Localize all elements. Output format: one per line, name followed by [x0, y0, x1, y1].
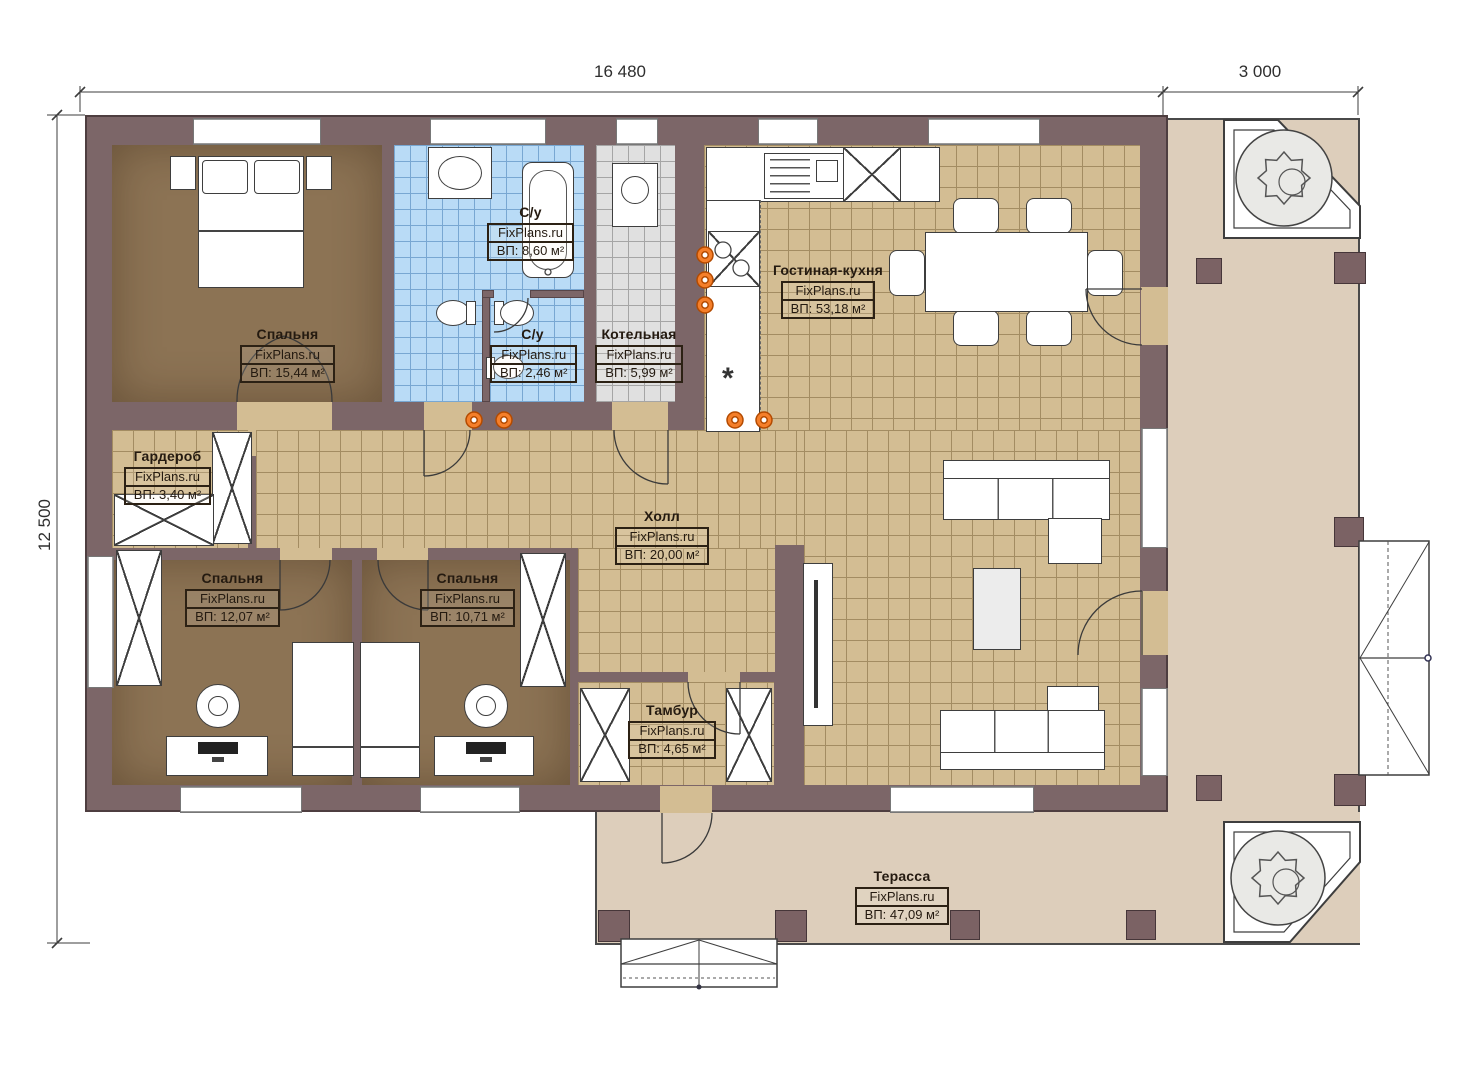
pillow — [202, 160, 248, 194]
door-gap-kitchen-terrace — [1141, 287, 1168, 345]
oven-control-box — [816, 160, 838, 182]
bed-blanket-line — [360, 746, 420, 748]
sofa-back — [943, 460, 1110, 480]
dining-chair — [953, 198, 999, 234]
dimension-top-right: 3 000 — [1190, 62, 1330, 82]
window-boiler — [616, 118, 658, 145]
sofa-chaise — [1048, 518, 1102, 564]
monitor — [198, 742, 238, 754]
desk-chair-inner — [208, 696, 228, 716]
column — [1196, 775, 1222, 801]
watermark: FixPlans.ru — [489, 225, 572, 243]
window-living-bottom — [890, 786, 1034, 813]
label-bathroom-small: С/у FixPlans.ruВП: 2,46 м² — [490, 326, 575, 383]
watermark: FixPlans.ru — [422, 591, 513, 609]
sofa2-back — [940, 752, 1105, 770]
sofa2-seats — [940, 710, 1105, 754]
bed-blanket-line — [292, 746, 354, 748]
desk-chair-inner — [476, 696, 496, 716]
entry-stairs-bottom — [620, 938, 780, 992]
window-bedroom-2-bottom — [180, 786, 302, 813]
kitchen-sink-icon — [708, 231, 760, 287]
label-hall: Холл FixPlans.ruВП: 20,00 м² — [612, 508, 712, 565]
oven-grill-lines — [770, 159, 810, 193]
dining-chair — [1026, 310, 1072, 346]
window-living-top — [928, 118, 1040, 145]
dimension-left: 12 500 — [35, 480, 55, 570]
sink-basin — [438, 156, 482, 190]
bed-blanket-line — [198, 230, 304, 232]
floor-plan: 16 480 3 000 12 500 * — [0, 0, 1473, 1080]
watermark: FixPlans.ru — [857, 889, 948, 907]
tree-canopy — [1236, 130, 1332, 226]
window-bedroom-2-left — [87, 556, 114, 688]
label-bathroom-main: С/у FixPlans.ruВП: 8,60 м² — [483, 204, 578, 261]
column — [1334, 252, 1366, 284]
watermark: FixPlans.ru — [630, 723, 713, 741]
sofa-seats — [943, 478, 1110, 520]
dining-chair — [953, 310, 999, 346]
wardrobe-cabinet — [212, 432, 252, 544]
tree-canopy — [1231, 831, 1325, 925]
nightstand — [170, 156, 196, 190]
watermark: FixPlans.ru — [126, 469, 209, 487]
column — [1126, 910, 1156, 940]
watermark: FixPlans.ru — [617, 529, 708, 547]
wardrobe-cabinet — [116, 550, 162, 686]
door-gap-bathroom — [424, 402, 472, 430]
label-vestibule: Тамбур FixPlans.ruВП: 4,65 м² — [622, 702, 722, 759]
monitor — [466, 742, 506, 754]
toilet-tank — [466, 301, 476, 325]
watermark: FixPlans.ru — [242, 347, 333, 365]
wardrobe-cabinet — [520, 553, 566, 687]
gas-boiler-mark: * — [722, 362, 734, 396]
washing-machine-drum — [621, 176, 649, 204]
tv-stand — [803, 563, 833, 726]
dining-chair — [1087, 250, 1123, 296]
floor-hall-corridor — [578, 548, 775, 672]
column — [1196, 258, 1222, 284]
planter-bottom-right — [1222, 820, 1362, 944]
label-wardrobe-room: Гардероб FixPlans.ruВП: 3,40 м² — [120, 448, 215, 505]
window-kitchen — [758, 118, 818, 145]
dimension-top-main: 16 480 — [540, 62, 700, 82]
door-gap-vestibule-terrace — [660, 786, 712, 813]
door-gap-bedroom-3 — [377, 548, 428, 560]
toilet-bowl — [436, 300, 470, 326]
window-living-right-lower — [1141, 688, 1168, 776]
door-gap-vestibule — [688, 672, 740, 682]
window-living-right — [1141, 428, 1168, 548]
door-gap-boiler — [612, 402, 668, 430]
wall-bathroom-small-top — [530, 290, 584, 298]
terrace-stairs-right — [1358, 540, 1434, 778]
watermark: FixPlans.ru — [597, 347, 680, 365]
monitor-stand — [212, 757, 224, 762]
dining-table — [925, 232, 1088, 312]
window-bedroom-master — [193, 118, 321, 145]
coffee-table — [973, 568, 1021, 650]
column — [1334, 774, 1366, 806]
floor-hall-living-opening — [775, 430, 804, 545]
watermark: FixPlans.ru — [492, 347, 575, 365]
wall-bathroom-small-stub — [482, 290, 494, 298]
window-bathroom — [430, 118, 546, 145]
single-bed — [292, 642, 354, 776]
label-living-kitchen: Гостиная-кухня FixPlans.ruВП: 53,18 м² — [768, 262, 888, 319]
label-terrace: Терасса FixPlans.ruВП: 47,09 м² — [848, 868, 956, 925]
sofa2-chaise — [1047, 686, 1099, 712]
wall-bathroom-small-vertical — [482, 290, 490, 402]
monitor-stand — [480, 757, 492, 762]
door-gap-bedroom-2 — [280, 548, 332, 560]
counter-dashed-edge — [760, 200, 761, 430]
window-bedroom-3-bottom — [420, 786, 520, 813]
door-gap-living-terrace — [1141, 591, 1168, 655]
single-bed — [360, 642, 420, 778]
dining-chair — [889, 250, 925, 296]
watermark: FixPlans.ru — [187, 591, 278, 609]
door-gap-bedroom-master — [237, 402, 332, 430]
label-bedroom-master: Спальня FixPlans.ruВП: 15,44 м² — [230, 326, 345, 383]
pillow — [254, 160, 300, 194]
label-bedroom-2: Спальня FixPlans.ruВП: 12,07 м² — [180, 570, 285, 627]
planter-top-right — [1222, 118, 1362, 240]
nightstand — [306, 156, 332, 190]
stove-icon — [843, 147, 901, 202]
label-bedroom-3: Спальня FixPlans.ruВП: 10,71 м² — [415, 570, 520, 627]
watermark: FixPlans.ru — [783, 283, 874, 301]
tv-screen — [814, 580, 818, 708]
toilet-bowl — [500, 300, 534, 326]
dining-chair — [1026, 198, 1072, 234]
vestibule-closet — [726, 688, 772, 782]
label-boiler-room: Котельная FixPlans.ruВП: 5,99 м² — [594, 326, 684, 383]
